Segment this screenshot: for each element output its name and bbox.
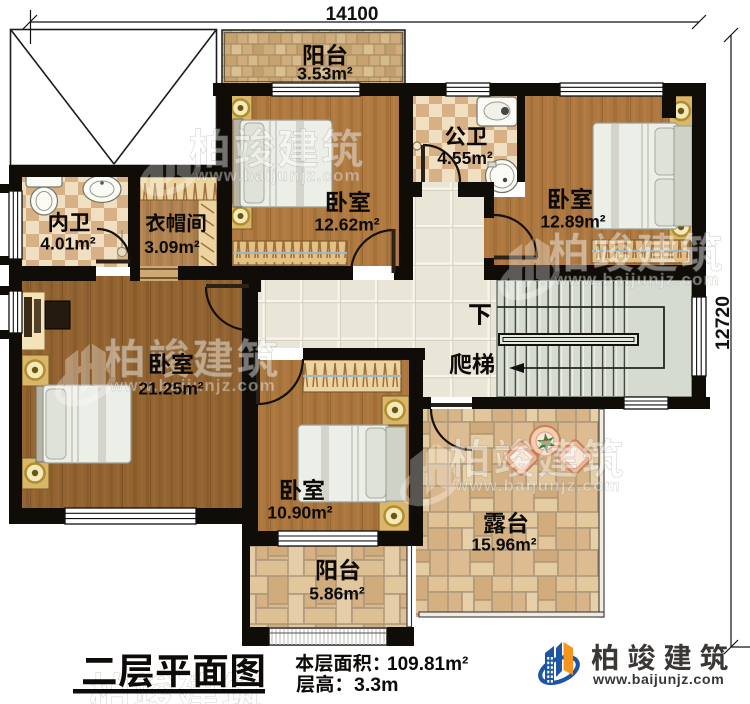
svg-text:www.baijunjz.com: www.baijunjz.com: [592, 672, 724, 688]
svg-text:3.09m²: 3.09m²: [144, 237, 200, 257]
svg-text:12.89m²: 12.89m²: [540, 212, 605, 232]
svg-text:4.55m²: 4.55m²: [437, 148, 493, 168]
svg-text:www.baijunjz.com: www.baijunjz.com: [553, 270, 720, 289]
svg-text:21.25m²: 21.25m²: [138, 379, 203, 399]
svg-text:12.62m²: 12.62m²: [314, 215, 379, 235]
svg-text:12720: 12720: [712, 296, 734, 350]
svg-text:4.01m²: 4.01m²: [40, 234, 96, 254]
svg-text:www.baijunjz.com: www.baijunjz.com: [194, 166, 361, 185]
svg-text:10.90m²: 10.90m²: [267, 503, 332, 523]
svg-text:5.86m²: 5.86m²: [309, 584, 365, 604]
svg-text:www.baijunjz.com: www.baijunjz.com: [454, 476, 621, 495]
svg-text:3.3m: 3.3m: [354, 674, 398, 696]
svg-text:3.53m²: 3.53m²: [297, 64, 353, 84]
svg-text:14100: 14100: [326, 4, 379, 25]
svg-text:109.81m²: 109.81m²: [387, 654, 468, 675]
svg-text:15.96m²: 15.96m²: [471, 535, 536, 555]
